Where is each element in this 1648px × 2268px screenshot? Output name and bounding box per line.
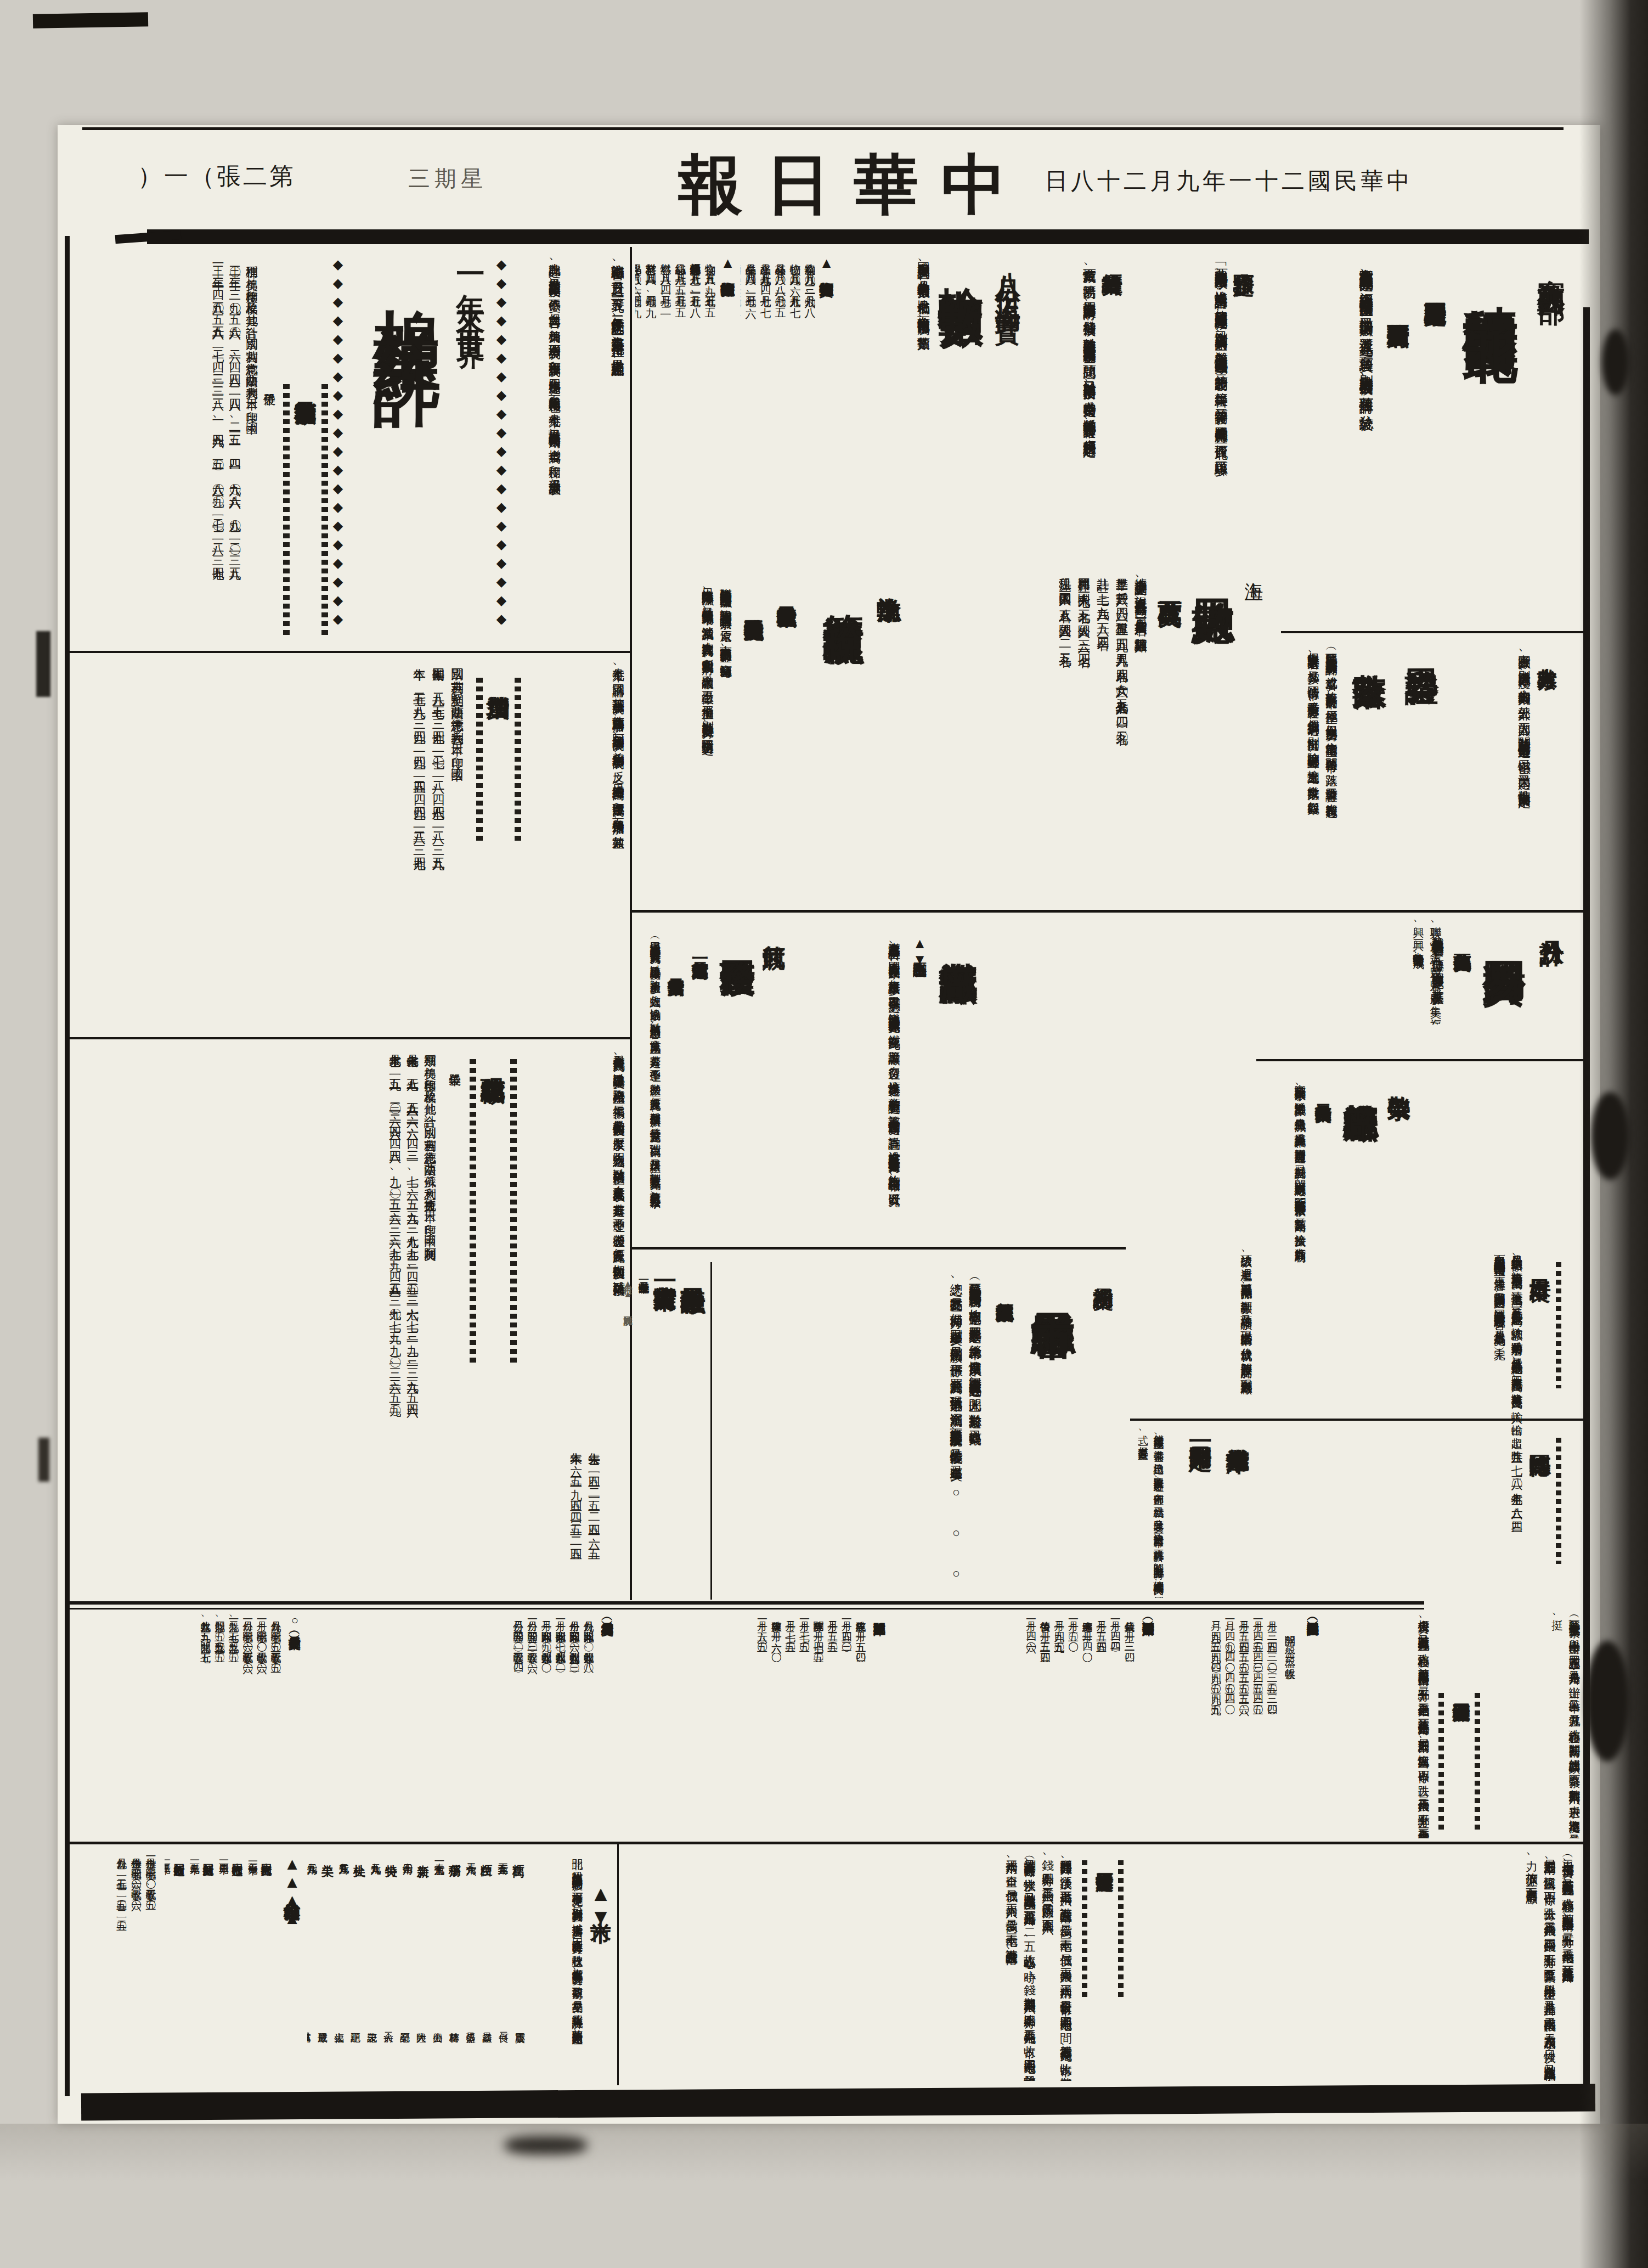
weekday-label: 星期三: [379, 164, 483, 192]
rice-dealer: 羊尖 九元〇八角: [307, 1855, 336, 2019]
silver-caption: ▲▲銀樓首飾▲▲: [279, 1855, 303, 2041]
table-band-top-rule-a: [69, 1601, 1424, 1605]
germany-caption-chain: [1556, 1438, 1561, 1564]
spine-blot-3: [1602, 329, 1629, 395]
export-table-1-caption: ▲上海卸賣物價指數: [819, 255, 836, 486]
rong-top-rule: [1256, 1059, 1585, 1061]
northwest-kicker: 實敎內外四部: [1535, 258, 1570, 455]
increase-caption: 消費增加: [485, 678, 513, 848]
table-g1-cols: 十月 三三、一四五 三三、二〇〇 三三、二五〇 三三、四〇〇十一月 三四、二五〇…: [1164, 1613, 1279, 1836]
northwest-section-3-head: 考察人數: [1536, 653, 1560, 752]
pinghan-body: （漢口通訊）平路管理債務委員會委員長何競武氏、以該路疊遭災變、路產損失過多、收入…: [635, 933, 664, 1240]
japan-caption-chain: [1556, 1262, 1561, 1388]
newspaper-scan: 第二張（一） 星期三 中華日報 中華民國二十一年九月二十八日 實敎內外四部 積極…: [0, 0, 1648, 2268]
trade-intro: 試觀八月份世界主要國之對外貿易、白德良佳、德國亦有轉佳之預兆、惟英美甚不振、: [1425, 927, 1447, 1240]
band2-middle-bottom-rule: [631, 1247, 1126, 1250]
masthead-rule: [147, 229, 1589, 244]
table-g5-caption: ○金業交易所（後市）: [286, 1613, 303, 1822]
yangli-caption-chain-right: [1118, 1860, 1124, 1997]
table-g5-cols: 九月份 開盤七三一、五〇〇 收盤七三五、五〇〇十一月 開盤七三二、〇〇〇 收盤七…: [75, 1613, 283, 1836]
table-g4-cols: 九月份 開盤四九九、一〇 收盤四九〇、八〇十月份 開盤四九五、六〇 收盤四九六、…: [311, 1613, 596, 1836]
scan-mark-top-left: [33, 12, 148, 29]
table-g4-caption: 紗布交易所（標準棉花）: [599, 1613, 616, 1833]
fishing-kicker: 漁輪業: [877, 579, 905, 672]
lyon-body: （哈瓦斯社二十六日法國里昂電）初覺呆滯後又忽均衡、故均在觀望之中、此外因夏季延長…: [719, 1273, 984, 1597]
cotton-headline-small: 一年來全世界: [454, 259, 489, 616]
qianye-body: 錢業準備庫成立後、準備基金、均已繳足、寧波路與仁里口之新址、內部佈置、亦已就緒、…: [1131, 1427, 1166, 1598]
cotton-rule-2: [69, 1037, 630, 1039]
qianye-headline: 定十月一日開幕: [1170, 1429, 1216, 1599]
rice-dealer: 蕩稻 十一元七角五: [432, 1855, 463, 2019]
silver-row: 新同行兌出 一百〇九元半: [188, 1855, 216, 2085]
trade-body: 八月份日本之總輸出額、比前月更增加二千七百萬兩、達一億三千七百萬、爲一九三〇年一…: [1425, 1246, 1525, 1597]
export-table-1: 農產物 八月一〇九、三 七月一〇六、八礦物 八月九〇、一六 七月八九、七林產品 …: [741, 255, 817, 568]
export-index-body: 國定稅則委員會調查、八月份上海卸賣物價指數、比七月仍稍低、而輸出物價指數比七月份…: [914, 252, 933, 568]
population-subhead: 突破三百萬: [1154, 583, 1186, 747]
masthead-title: 中華日報: [678, 142, 1007, 224]
pinghan-headline: 整理平漢路債務: [713, 933, 761, 1218]
population-headline: 人口總數: [1189, 568, 1242, 757]
edition-label: 第二張（一）: [140, 160, 294, 193]
rong-body: 實業家棉紗大王榮宗敬、近鑒於絲業不振、生絲產量日減、爲謀振興絲業、增加國產力量起…: [1259, 1076, 1308, 1402]
cement-body: 查洋灰爲建築工程主要材料、國內製造工廠寥無幾家、年來建設事業日多、已有供不應求之…: [797, 933, 904, 1240]
cotton-headline-diamond-left: ◆◆◆◆◆◆◆◆◆◆◆◆◆◆◆◆◆◆◆◆◆◆: [329, 257, 346, 624]
rice-shop-list: 殷小五寶何良二談鑫昌張盛昌蔣松林公興山陸大興石榮記俞二大朱茂記順正記福大生晉成廠…: [307, 2025, 527, 2085]
yangli-caption-chain-left: [1082, 1860, 1087, 1997]
export-index-headline-top: 八月份上海卸賣: [993, 252, 1025, 565]
yangli-caption: 洋厘回疲銀拆平定: [1090, 1859, 1117, 2002]
cement-headline: 鐵部籌設洋灰廠: [933, 933, 984, 1239]
paris-top-rule: [1281, 631, 1587, 633]
consume-caption-chain-right: [321, 384, 328, 637]
cotton-lead: 滬市紡織聯合會、於月之五日、發表一九三一—三二年度世界棉業之統計、（去年八月一日…: [566, 254, 628, 638]
rice-dealer: 高粳 十三元五角: [496, 1855, 527, 2019]
fishing-subhead-1: 日本漁輪積極侵我漁業: [772, 592, 800, 882]
northwest-subhead-1: 合組攷察團並決定考察步驟: [1420, 285, 1451, 626]
stock-caption-chain-left: [470, 1059, 476, 1366]
rice-dealer-list: 高粳 十三元五角 白粳 十二元六角 蕩稻 十一元七角五 新尖 十元〇四角 特尖 …: [307, 1855, 527, 2019]
fishing-body: 聯興等漁輪公司因聞財部將重徵漁稅、昨聯電請蔣委員長請查明有無其事、原電云、南京中…: [637, 579, 735, 903]
stock-table: 種類別 美棉 印度棉 埃及棉 其他 合計 國別 英吉利 德意志 法蘭西 蘇俄 意…: [82, 1045, 439, 1430]
export-index-headline: 輸出物價指數: [934, 251, 991, 559]
rice-intro: 開北 昨日蘇州河埠各幫米船約到二十餘艘、河下存糧雖不充足、日到米源到貨甚旺、城廂…: [530, 1850, 586, 2086]
rong-bottom-rule: [1130, 1419, 1585, 1421]
gold-caption-chain-left: [1438, 1693, 1444, 1830]
increase-caption-chain-left: [476, 678, 483, 842]
silver-rows: 大同行兌出 每兩一百十元半 大同行收進 一百〇四元半 新同行兌出 一百〇九元半 …: [165, 1855, 274, 2085]
cotton-tail-table: 去年末 二二、四五 一二、一五 二一、四五 一六、二五本年末 一六、二五 一九、…: [82, 1443, 603, 1591]
export-table-2: 食物 八月一三五、九 七月一三五、五糧食他食物品及其原料 八月一五七、二 七月一…: [635, 255, 718, 568]
rong-kicker: 榮宗敬: [1387, 1078, 1414, 1177]
pinghan-subhead-2: 發行債券六千萬元: [665, 966, 687, 1218]
scan-mark-left-margin: [36, 631, 50, 697]
frame-left-rule: [65, 236, 70, 2096]
bottom-misc-quotes: 十一月標金 開盤七三二、〇〇〇 收盤七三五、五〇〇十月份標金 開盤七三〇、六〇〇…: [76, 1850, 158, 2086]
pinghan-cont: 委員會委員長何競武氏、以該路疊遭災變、路產權殘殆盡、元氣損傷、非最短期內難於恢復…: [549, 1045, 628, 1430]
northwest-section-3-body: 考察團人數、則決以專門人才爲限度、由內部約爲數十人、外部三人、內部三人、關於開發…: [1454, 645, 1533, 900]
silver-row: 新同行收進 一百〇三元半: [165, 1855, 187, 2085]
northwest-section-2-head: 籌措經費: [1102, 258, 1126, 357]
gold-caption-chain-right: [1475, 1693, 1480, 1830]
rong-headline: 籌辦大規模絲廠: [1337, 1077, 1385, 1384]
table-g1-caption: 物品證券（上午期貨開盤）（元本位）: [1305, 1613, 1321, 1836]
yangli-body-left: 洋厘開盤卽升錢、漲後跌、爲七百三十六兩二、計有六兩五錢上落、最高價、三十七兩三、…: [625, 1850, 1075, 2081]
rice-dealer: 新尖 十元〇四角: [400, 1855, 431, 2019]
northwest-section-1-head: 預定步驟: [1233, 258, 1257, 357]
table-g3-caption: 統稅鹽稅關稅庫券: [871, 1613, 888, 1811]
paris-headline-2: 全數跌落: [1345, 648, 1392, 812]
cement-subhead: ▲今飭各路調查出產灰石料區▼: [906, 936, 929, 1237]
market-title-vrule: [710, 1262, 712, 1600]
rice-caption: ▲米市▼: [588, 1882, 614, 1992]
table-band-top-rule-b: [69, 1608, 1424, 1609]
rong-cont: 該項借款、週息七厘、以某項不動產爲抵押品、訂期年數、及各項詳細手續、現已在繼續商…: [1131, 1246, 1255, 1416]
trade-headline: 各國對外貿易: [1479, 927, 1533, 1240]
stock-caption: 紡績棉花現存額: [478, 1059, 509, 1372]
japan-caption: 日本良好: [1530, 1262, 1555, 1394]
pinghan-subhead-1: 債款達一萬萬餘元: [689, 949, 711, 1202]
rice-dealer: 杜尖 九元八角三: [337, 1855, 368, 2019]
gold-caption: 標金回漲四兩丈錢: [1446, 1690, 1474, 1833]
bottom-paper-shadow: [0, 2124, 1648, 2268]
cotton-rule-1: [69, 651, 630, 653]
stock-caption-chain-right: [510, 1059, 517, 1366]
paris-body: （哈瓦斯社二十五日巴黎電）政府調換債券計劃、成效卓著、故一般人對於交易所市況、極…: [1284, 643, 1341, 901]
lyon-subhead: 美絲價挺絲市前途樂觀: [991, 1290, 1017, 1589]
lyon-kicker: 紐約證券交易所市況: [1091, 1272, 1117, 1590]
population-body: 據上海市公安局之調查、上海現在（八月）人口爲三百餘萬、五戶居住者增一八八八四名、…: [1030, 568, 1150, 900]
consume-caption: 全世界棉花消費額: [292, 384, 320, 642]
rice-dealer: 特尖 九元九角八: [369, 1855, 399, 2019]
market-table-title-1: 中華日報金融: [680, 1269, 710, 1592]
silver-row: 大同行收進 一百〇四元半: [217, 1855, 245, 2085]
paris-headline-1: 巴黎證券: [1398, 643, 1445, 808]
consume-caption-chain-left: [283, 384, 290, 637]
population-kicker: 上海: [1244, 568, 1266, 628]
band1-bottom-rule: [631, 910, 1588, 913]
northwest-subhead-2: 經費六百萬由政府發行公債: [1382, 307, 1413, 648]
consume-unit: 單位千袋: [262, 384, 278, 494]
bottom-band-top-rule: [69, 1842, 1585, 1844]
table-g2-caption: 公債庫券（下午期貨開盤）: [1140, 1613, 1156, 1811]
spine-blot-1: [1591, 1092, 1629, 1180]
table-g2-cols: 裁兵公債 十月 三三、一四〇十一月 三四、二四〇十二月 三五、四五〇編遣庫券 十…: [893, 1613, 1137, 1836]
frame-top-rule: [82, 127, 1564, 130]
trade-subhead: 白德良佳英美惡化: [1449, 939, 1475, 1239]
lyon-headline: 影響里昂絲市: [1021, 1279, 1083, 1594]
gold-body-left: 標金上長所賣、又以荷蘭正金互做九月二五、致人心稍疲、義豐永丙與乾昌祥出售上二兩、…: [1333, 1611, 1432, 1838]
rice-dealer: 白粳 十二元六角: [464, 1855, 495, 2019]
fishing-headline: 籲請勿重徵漁稅: [805, 582, 871, 900]
table-g3-cols: 統稅庫券 十月 五五、四〇〇十一月 五四、三〇〇十二月 五三、二五〇關稅庫券 十…: [622, 1613, 868, 1836]
silver-row: 大同行兌出 每兩一百十元半: [246, 1855, 274, 2085]
gold-body-right: （哈瓦斯社二十七日）匯票見緊、舉比出十月辦士、又因志豐永元、又進十一月卅元、辦士…: [1481, 1611, 1583, 1838]
scan-mark-left-margin-2: [38, 1438, 49, 1482]
fishing-subhead-2: 不能使我漁民再負重稅: [740, 605, 767, 896]
pinghan-kicker: 何競武: [763, 927, 789, 1015]
stock-unit: 單位千袋: [448, 1065, 463, 1174]
table-g1-labels: 開盤 二盤 三盤 收盤: [1283, 1627, 1298, 1808]
market-table-title-2: 商業行市一覽表: [653, 1269, 680, 1592]
cotton-headline-diamond-right: ◆◆◆◆◆◆◆◆◆◆◆◆◆◆◆◆◆◆◆◆◆◆: [493, 257, 509, 624]
cotton-headline: 棉業統計: [349, 256, 452, 640]
bottom-vrule: [617, 1844, 619, 2085]
market-table-date: 中華民國二十一年九月廿七: [636, 1274, 652, 1582]
cotton-consume-intro: 由此計觀之、世界全體之消費額與上年度比較、依然不變、但自其內容言、美棉消費、約增…: [513, 254, 564, 638]
rong-subhead: 向美銀界借款二千萬: [1310, 1092, 1334, 1372]
northwest-lead: 實業敎育兩部發起組織西北考察團問題、自經會同內政外交兩部幾度會商辦法後、業已決定…: [1262, 258, 1377, 637]
trade-kicker: 八月份計: [1539, 922, 1568, 1054]
germany-caption: 德國轉好: [1530, 1438, 1555, 1569]
market-table-note: 銀行市▲▲ 以規元兩計算: [621, 1279, 634, 1575]
increase-intro: 本年七月末、就國別論、英吉利減少三十萬袋、德意志法蘭西均有增加、阿美利加約增加二…: [524, 659, 628, 1021]
consume-table: 棉種別 美棉 印度棉 埃及棉 其他 合計 國別 英吉利 德意志 法蘭西 義大利 …: [81, 257, 260, 641]
masthead-date: 中華民國二十一年九月二十八日: [1026, 166, 1410, 196]
increase-table: 國別 英吉利 美利堅 法蘭西 德意志 義大利 日本 印度 中國去年同期 一、八九…: [115, 659, 466, 1021]
export-table-2-caption: ▲上海輸出物價指數: [720, 255, 737, 486]
qianye-headline-top: 錢業準備庫: [1219, 1431, 1253, 1568]
increase-caption-chain-right: [515, 678, 521, 842]
yangli-body-right: （二十七日）標金上長所賣、又以荷蘭正金互做九月二五、致人心稍疲、義豐永丙與乾昌祥…: [1127, 1850, 1577, 2081]
spine-blot-2: [1585, 1641, 1629, 1762]
